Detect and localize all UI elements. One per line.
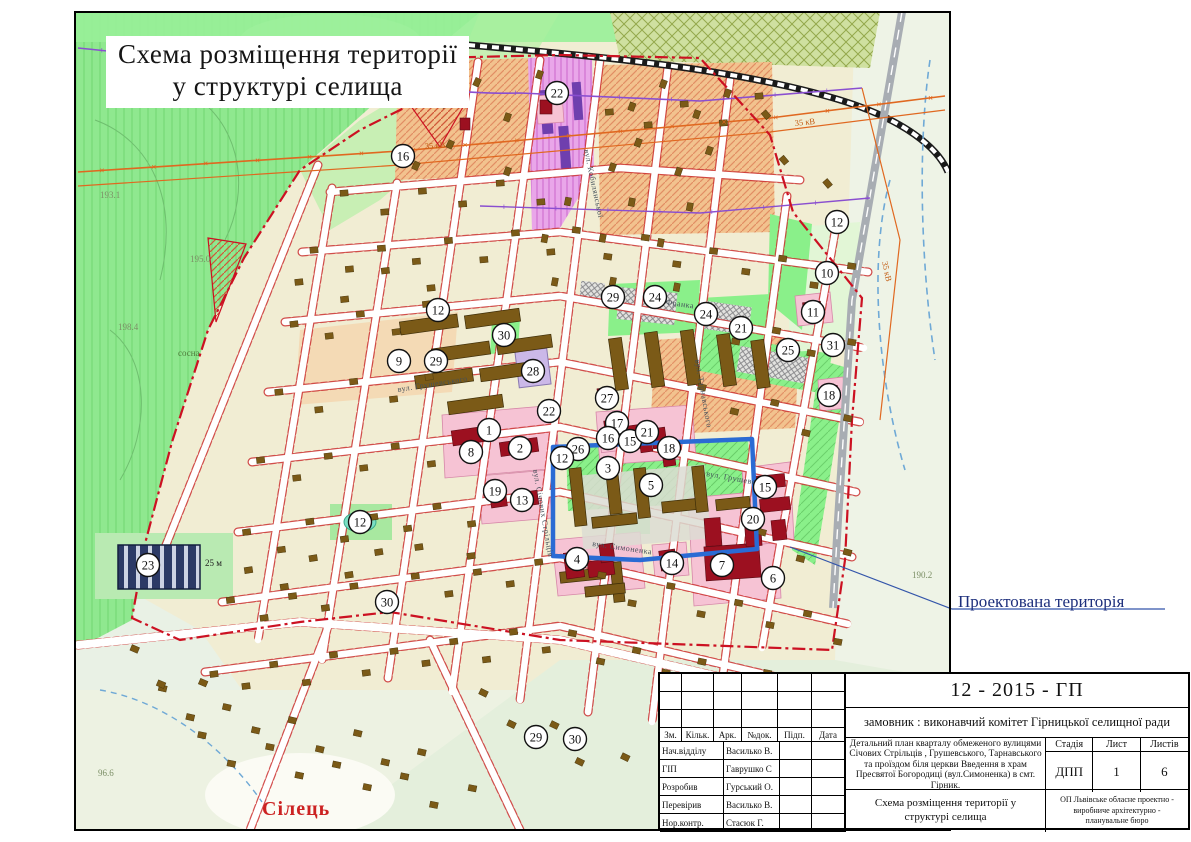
svg-text:3: 3: [605, 461, 611, 475]
map-title: Схема розміщення території у структурі с…: [106, 36, 469, 108]
elevation-label: 96.6: [98, 768, 114, 778]
svg-text:×: ×: [825, 106, 830, 116]
svg-text:9: 9: [396, 354, 402, 368]
width-label: 25 м: [205, 558, 222, 568]
svg-text:×: ×: [99, 165, 104, 175]
svg-text:29: 29: [430, 354, 443, 368]
sheets-value: 6: [1141, 752, 1188, 792]
map-marker: 31: [822, 334, 845, 357]
sheet-label: Лист: [1093, 738, 1140, 752]
map-marker: 30: [493, 324, 516, 347]
project-code: 12 - 2015 - ГП: [846, 674, 1188, 708]
svg-text:×: ×: [618, 126, 623, 136]
svg-text:×: ×: [203, 159, 208, 169]
client-row: замовник : виконавчий комітет Гірницької…: [846, 708, 1188, 738]
elevation-label: 198.4: [118, 322, 139, 332]
column-header: №док.: [742, 728, 778, 742]
svg-text:18: 18: [663, 441, 676, 455]
organization: ОП Львівське обласне проектно - виробнич…: [1046, 790, 1188, 832]
map-marker: 12: [826, 211, 849, 234]
svg-text:+: +: [865, 193, 870, 203]
signature-table-header: Зм.Кільк.Арк.№док.Підп.Дата: [660, 674, 844, 742]
svg-text:×: ×: [928, 93, 933, 103]
svg-text:8: 8: [468, 445, 474, 459]
column-header: Дата: [812, 728, 844, 742]
svg-text:+: +: [501, 202, 506, 212]
signature-table: Зм.Кільк.Арк.№док.Підп.Дата Нач.відділуВ…: [660, 674, 846, 832]
svg-text:20: 20: [747, 512, 760, 526]
map-marker: 22: [546, 82, 569, 105]
svg-text:30: 30: [498, 328, 511, 342]
svg-text:+: +: [824, 86, 829, 96]
signature-rows: Нач.відділуВасилько В.ГІПГаврушко СРозро…: [660, 742, 844, 832]
signature-name: Стасюк Г.: [724, 814, 780, 832]
map-marker: 14: [661, 552, 684, 575]
map-marker: 12: [349, 511, 372, 534]
svg-text:15: 15: [624, 434, 637, 448]
stage-sheet-table: Стадія Лист Листів ДПП 1 6: [1046, 738, 1188, 792]
column-header: Підп.: [778, 728, 812, 742]
map-marker: 6: [762, 567, 785, 590]
svg-text:27: 27: [601, 391, 614, 405]
map-marker: 27: [596, 387, 619, 410]
map-marker: 30: [376, 591, 399, 614]
sheet-value: 1: [1093, 752, 1140, 792]
map-marker: 16: [597, 427, 620, 450]
svg-text:7: 7: [719, 558, 725, 572]
plan-sheet: вул. Грушевськоговул. Грушевськоговул. Ф…: [0, 0, 1191, 842]
svg-text:1: 1: [486, 423, 492, 437]
svg-text:22: 22: [551, 86, 564, 100]
svg-text:23: 23: [142, 558, 155, 572]
map-marker: 13: [511, 489, 534, 512]
svg-text:15: 15: [759, 480, 772, 494]
svg-text:12: 12: [432, 303, 445, 317]
map-marker: 4: [566, 548, 589, 571]
map-marker: 8: [460, 441, 483, 464]
svg-text:16: 16: [397, 149, 410, 163]
map-title-line1: Схема розміщення території: [118, 39, 457, 71]
power-voltage-label: 35 кВ: [424, 140, 445, 151]
map-marker: 2: [509, 437, 532, 460]
column-header: Зм.: [660, 728, 682, 742]
svg-text:12: 12: [831, 215, 844, 229]
map-marker: 16: [392, 145, 415, 168]
svg-text:4: 4: [574, 552, 581, 566]
signature-name: Василько В.: [724, 742, 780, 760]
svg-text:11: 11: [807, 305, 819, 319]
signature-name: Гурський О.: [724, 778, 780, 796]
svg-text:×: ×: [721, 117, 726, 127]
svg-text:+: +: [657, 207, 662, 217]
svg-text:31: 31: [827, 338, 840, 352]
svg-text:×: ×: [359, 149, 364, 159]
svg-text:×: ×: [151, 162, 156, 172]
map-marker: 28: [522, 360, 545, 383]
map-marker: 5: [640, 474, 663, 497]
map-marker: 29: [425, 350, 448, 373]
svg-text:14: 14: [666, 556, 679, 570]
stage-value: ДПП: [1046, 752, 1093, 792]
svg-text:2: 2: [517, 441, 523, 455]
map-marker: 10: [816, 262, 839, 285]
svg-text:+: +: [553, 203, 558, 213]
svg-text:21: 21: [735, 321, 748, 335]
signature-role: Нор.контр.: [660, 814, 724, 832]
svg-text:×: ×: [462, 140, 467, 150]
svg-text:12: 12: [354, 515, 367, 529]
column-header: Кільк.: [682, 728, 714, 742]
svg-text:×: ×: [876, 99, 881, 109]
svg-text:12: 12: [556, 451, 569, 465]
signature-name: Василько В.: [724, 796, 780, 814]
title-block-right: 12 - 2015 - ГП замовник : виконавчий ком…: [846, 674, 1188, 832]
svg-text:+: +: [513, 88, 518, 98]
signature-role: Перевірив: [660, 796, 724, 814]
svg-text:5: 5: [648, 478, 654, 492]
svg-text:30: 30: [569, 732, 582, 746]
signature-role: Розробив: [660, 778, 724, 796]
map-marker: 11: [802, 301, 825, 324]
map-marker: 20: [742, 508, 765, 531]
svg-text:29: 29: [530, 730, 543, 744]
project-description: Детальний план кварталу обмеженого вулиц…: [846, 738, 1046, 792]
svg-text:28: 28: [527, 364, 540, 378]
village-label: Сілець: [262, 798, 330, 821]
map-marker: 29: [602, 286, 625, 309]
svg-text:18: 18: [823, 388, 836, 402]
svg-text:×: ×: [255, 155, 260, 165]
svg-text:25: 25: [782, 343, 795, 357]
signature-role: Нач.відділу: [660, 742, 724, 760]
column-header: Арк.: [714, 728, 742, 742]
svg-text:22: 22: [543, 404, 556, 418]
map-marker: 24: [644, 286, 667, 309]
olive-field: [610, 12, 880, 68]
elevation-label: 195.0: [190, 254, 211, 264]
map-title-line2: у структурі селища: [118, 71, 457, 103]
svg-text:24: 24: [700, 307, 713, 321]
sheet-title: Схема розміщення території у структурі с…: [846, 790, 1046, 832]
signature-role: ГІП: [660, 760, 724, 778]
map-marker: 18: [818, 384, 841, 407]
map-marker: 21: [636, 421, 659, 444]
svg-text:+: +: [709, 207, 714, 217]
svg-text:×: ×: [773, 112, 778, 122]
svg-text:+: +: [813, 198, 818, 208]
map-marker: 24: [695, 303, 718, 326]
projected-territory-label: Проектована територія: [958, 592, 1124, 612]
map-marker: 23: [137, 554, 160, 577]
svg-text:+: +: [669, 95, 674, 105]
map-marker: 30: [564, 728, 587, 751]
map-marker: 15: [754, 476, 777, 499]
svg-text:21: 21: [641, 425, 654, 439]
map-marker: 12: [427, 299, 450, 322]
svg-text:19: 19: [489, 484, 502, 498]
map-marker: 12: [551, 447, 574, 470]
svg-text:+: +: [605, 205, 610, 215]
map-marker: 21: [730, 317, 753, 340]
svg-text:+: +: [721, 94, 726, 104]
map-marker: 25: [777, 339, 800, 362]
svg-text:10: 10: [821, 266, 834, 280]
map-marker: 29: [525, 726, 548, 749]
map-marker: 18: [658, 437, 681, 460]
map-marker: 3: [597, 457, 620, 480]
svg-text:+: +: [772, 90, 777, 100]
svg-text:30: 30: [381, 595, 394, 609]
title-block: Зм.Кільк.Арк.№док.Підп.Дата Нач.відділуВ…: [658, 672, 1190, 830]
svg-text:×: ×: [566, 131, 571, 141]
svg-text:×: ×: [514, 136, 519, 146]
svg-text:×: ×: [670, 122, 675, 132]
svg-text:+: +: [99, 45, 104, 55]
map-marker: 22: [538, 400, 561, 423]
svg-text:24: 24: [649, 290, 662, 304]
map-marker: 19: [484, 480, 507, 503]
map-marker: 7: [711, 554, 734, 577]
svg-text:29: 29: [607, 290, 620, 304]
svg-text:+: +: [617, 92, 622, 102]
stage-label: Стадія: [1046, 738, 1093, 752]
pine-label: сосна: [178, 348, 200, 358]
svg-text:16: 16: [602, 431, 615, 445]
map-marker: 9: [388, 350, 411, 373]
elevation-label: 193.1: [100, 190, 120, 200]
svg-text:13: 13: [516, 493, 529, 507]
svg-text:×: ×: [307, 152, 312, 162]
svg-text:+: +: [761, 202, 766, 212]
svg-text:6: 6: [770, 571, 776, 585]
elevation-label: 190.2: [912, 570, 932, 580]
signature-name: Гаврушко С: [724, 760, 780, 778]
map-marker: 1: [478, 419, 501, 442]
sheets-label: Листів: [1141, 738, 1188, 752]
